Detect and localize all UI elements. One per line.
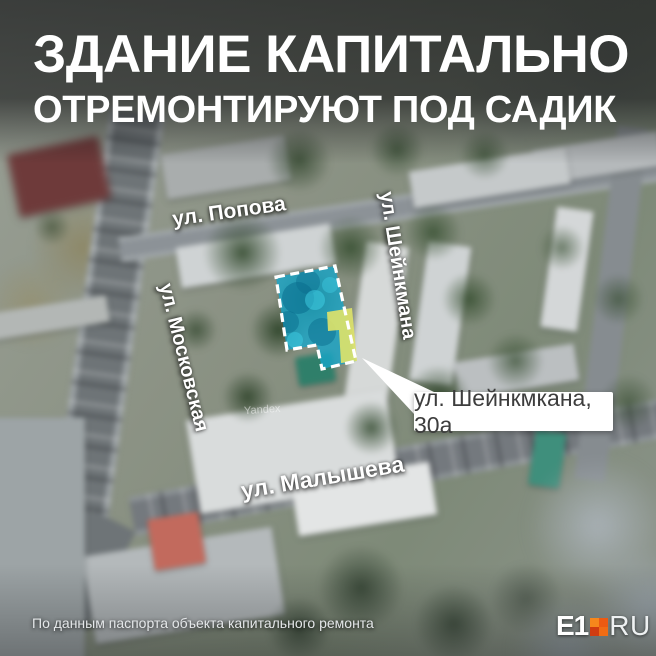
map-watermark: Yandex	[244, 403, 281, 418]
logo-square-q2	[599, 618, 608, 627]
headline: ЗДАНИЕ КАПИТАЛЬНО ОТРЕМОНТИРУЮТ ПОД САДИ…	[33, 28, 629, 129]
logo-text-ru: RU	[609, 610, 650, 642]
headline-line-2: ОТРЕМОНТИРУЮТ ПОД САДИК	[33, 91, 629, 129]
address-callout-label: ул. Шейнкмкана, 30а	[414, 385, 613, 439]
e1ru-logo: E1 RU	[556, 610, 651, 642]
infographic-canvas: ул. Попова ул. Шейнкмана ул. Московская …	[0, 0, 656, 656]
logo-square-q4	[599, 627, 608, 636]
headline-line-1: ЗДАНИЕ КАПИТАЛЬНО	[33, 28, 629, 81]
source-attribution: По данным паспорта объекта капитального …	[32, 615, 374, 631]
logo-square-q3	[590, 627, 599, 636]
address-callout: ул. Шейнкмкана, 30а	[414, 392, 613, 431]
logo-square-icon	[590, 618, 608, 636]
logo-square-q1	[590, 618, 599, 627]
logo-text-e1: E1	[556, 610, 588, 642]
